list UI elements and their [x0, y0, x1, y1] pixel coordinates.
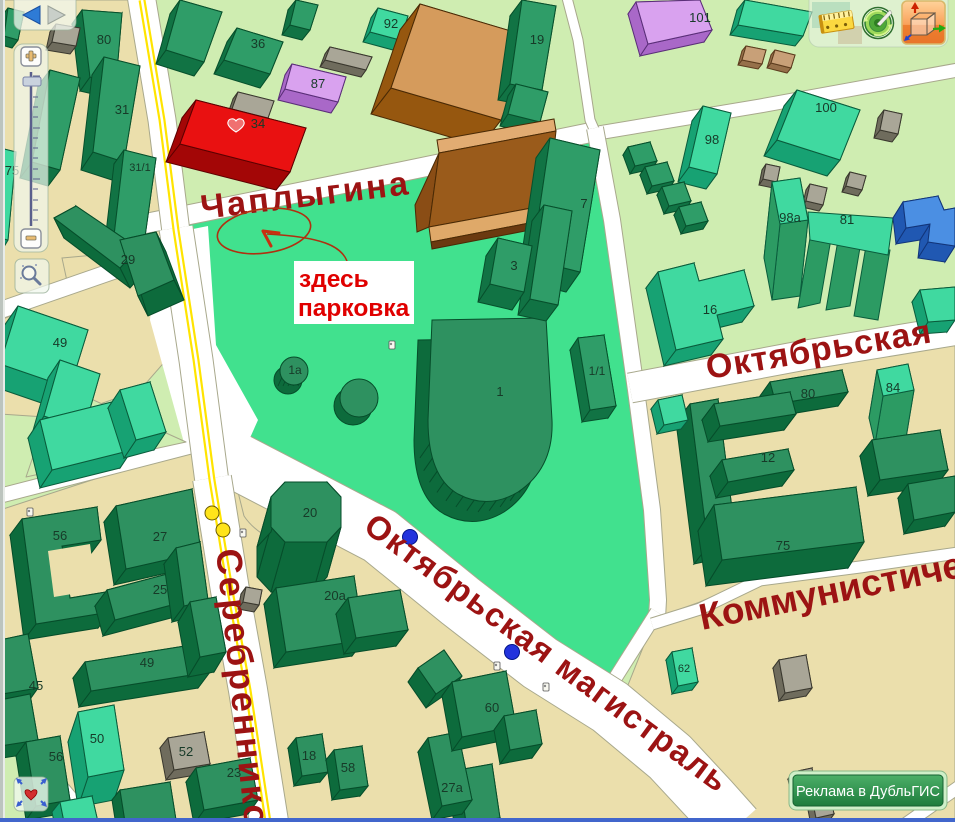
svg-text:80: 80 [801, 386, 815, 401]
svg-text:58: 58 [341, 760, 355, 775]
svg-text:3: 3 [510, 258, 517, 273]
svg-text:парковка: парковка [298, 295, 410, 322]
svg-text:75: 75 [776, 538, 790, 553]
svg-text:62: 62 [678, 663, 690, 675]
svg-text:98a: 98a [779, 210, 801, 225]
svg-text:18: 18 [302, 748, 316, 763]
svg-text:Реклама в ДубльГИС: Реклама в ДубльГИС [796, 784, 940, 800]
svg-text:87: 87 [311, 76, 325, 91]
svg-text:31/1: 31/1 [129, 162, 150, 174]
svg-text:1a: 1a [288, 363, 302, 377]
svg-text:7: 7 [580, 196, 587, 211]
svg-text:49: 49 [53, 335, 67, 350]
svg-text:45: 45 [29, 678, 43, 693]
svg-text:80: 80 [97, 32, 111, 47]
svg-text:84: 84 [886, 380, 900, 395]
svg-text:60: 60 [485, 700, 499, 715]
svg-text:19: 19 [530, 32, 544, 47]
svg-text:101: 101 [689, 10, 711, 25]
svg-text:50: 50 [90, 731, 104, 746]
svg-text:1: 1 [496, 384, 503, 399]
svg-text:20a: 20a [324, 588, 346, 603]
svg-text:31: 31 [115, 102, 129, 117]
svg-text:52: 52 [179, 744, 193, 759]
svg-text:98: 98 [705, 132, 719, 147]
svg-text:27a: 27a [441, 780, 463, 795]
svg-text:здесь: здесь [299, 266, 369, 293]
svg-text:92: 92 [384, 16, 398, 31]
svg-text:34: 34 [251, 116, 265, 131]
svg-text:25: 25 [153, 582, 167, 597]
svg-text:100: 100 [815, 100, 837, 115]
svg-text:36: 36 [251, 36, 265, 51]
svg-text:1/1: 1/1 [589, 364, 606, 378]
svg-text:56: 56 [53, 528, 67, 543]
svg-text:12: 12 [761, 450, 775, 465]
svg-text:49: 49 [140, 655, 154, 670]
svg-text:56: 56 [49, 749, 63, 764]
svg-text:20: 20 [303, 505, 317, 520]
svg-text:81: 81 [840, 212, 854, 227]
svg-text:29: 29 [121, 252, 135, 267]
svg-text:27: 27 [153, 529, 167, 544]
svg-text:16: 16 [703, 302, 717, 317]
